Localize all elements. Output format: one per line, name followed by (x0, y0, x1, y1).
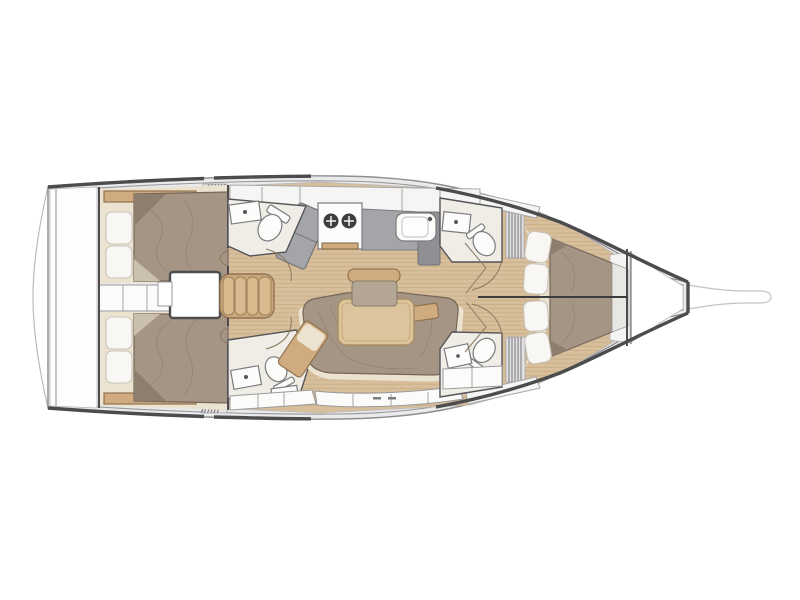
head-forward-starboard (440, 332, 502, 397)
engine-box (170, 272, 220, 318)
shower-pan (444, 344, 472, 369)
head-lockers (443, 366, 502, 389)
washbasin (229, 201, 261, 224)
bowsprit (688, 285, 771, 309)
yacht-floor-plan (0, 0, 800, 600)
bench-backrest (348, 269, 400, 282)
pillow (524, 230, 553, 264)
aft-cabin-starboard (99, 312, 228, 410)
pillow (106, 351, 132, 383)
washbasin (231, 366, 262, 390)
head-forward-port (440, 198, 502, 262)
forepeak-anchor-locker (630, 252, 683, 343)
locker-handle (388, 397, 396, 400)
stern-locker (50, 187, 97, 408)
engine-box-tab (158, 282, 172, 306)
pillow (106, 246, 132, 278)
aft-cabin-port (99, 185, 228, 283)
pillow (524, 331, 553, 365)
locker-handle (373, 397, 381, 400)
pillow (523, 263, 549, 295)
companionway-stairs (220, 274, 274, 318)
washbasin (442, 212, 471, 234)
oven-strip (322, 243, 358, 249)
floor-plan-canvas (0, 0, 800, 600)
stove (318, 203, 362, 249)
galley-sink (396, 213, 436, 241)
pillow (106, 317, 132, 349)
pillow (523, 300, 549, 332)
swim-platform (33, 187, 48, 408)
bench-cushion (352, 281, 397, 306)
pillow (106, 212, 132, 244)
faucet (428, 217, 432, 221)
bench-seat (348, 269, 400, 306)
